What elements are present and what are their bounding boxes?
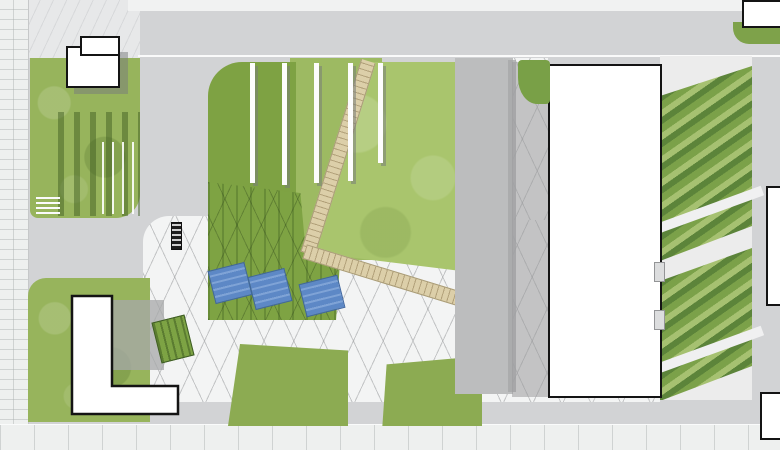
building-main <box>548 64 662 398</box>
railing <box>132 142 134 214</box>
railing <box>112 142 114 214</box>
steps <box>36 207 60 209</box>
bench-icon <box>171 222 182 250</box>
steps <box>36 212 60 214</box>
building-east <box>766 186 780 306</box>
building-entrance <box>654 310 665 330</box>
building-northwest-wing <box>80 36 120 56</box>
pergola-bar <box>348 63 353 181</box>
sidewalk-top-strip <box>128 0 780 11</box>
building-entrance <box>654 262 665 282</box>
pergola-bar <box>378 63 383 163</box>
pergola-bar <box>250 63 255 183</box>
landscape-site-plan <box>0 0 780 450</box>
sidewalk-bottom <box>0 424 780 450</box>
triangular-planter-strip <box>455 58 513 394</box>
pergola-bar <box>314 63 319 183</box>
sidewalk-left <box>0 0 29 450</box>
building-southeast <box>760 392 780 440</box>
railing <box>102 142 104 214</box>
building-northeast <box>742 0 780 28</box>
pergola-bar <box>282 63 287 185</box>
grove-ground-south <box>228 344 348 426</box>
building-shadow <box>512 62 548 397</box>
hedge-rows <box>58 112 140 216</box>
steps <box>36 202 60 204</box>
steps <box>36 197 60 199</box>
railing <box>122 142 124 214</box>
